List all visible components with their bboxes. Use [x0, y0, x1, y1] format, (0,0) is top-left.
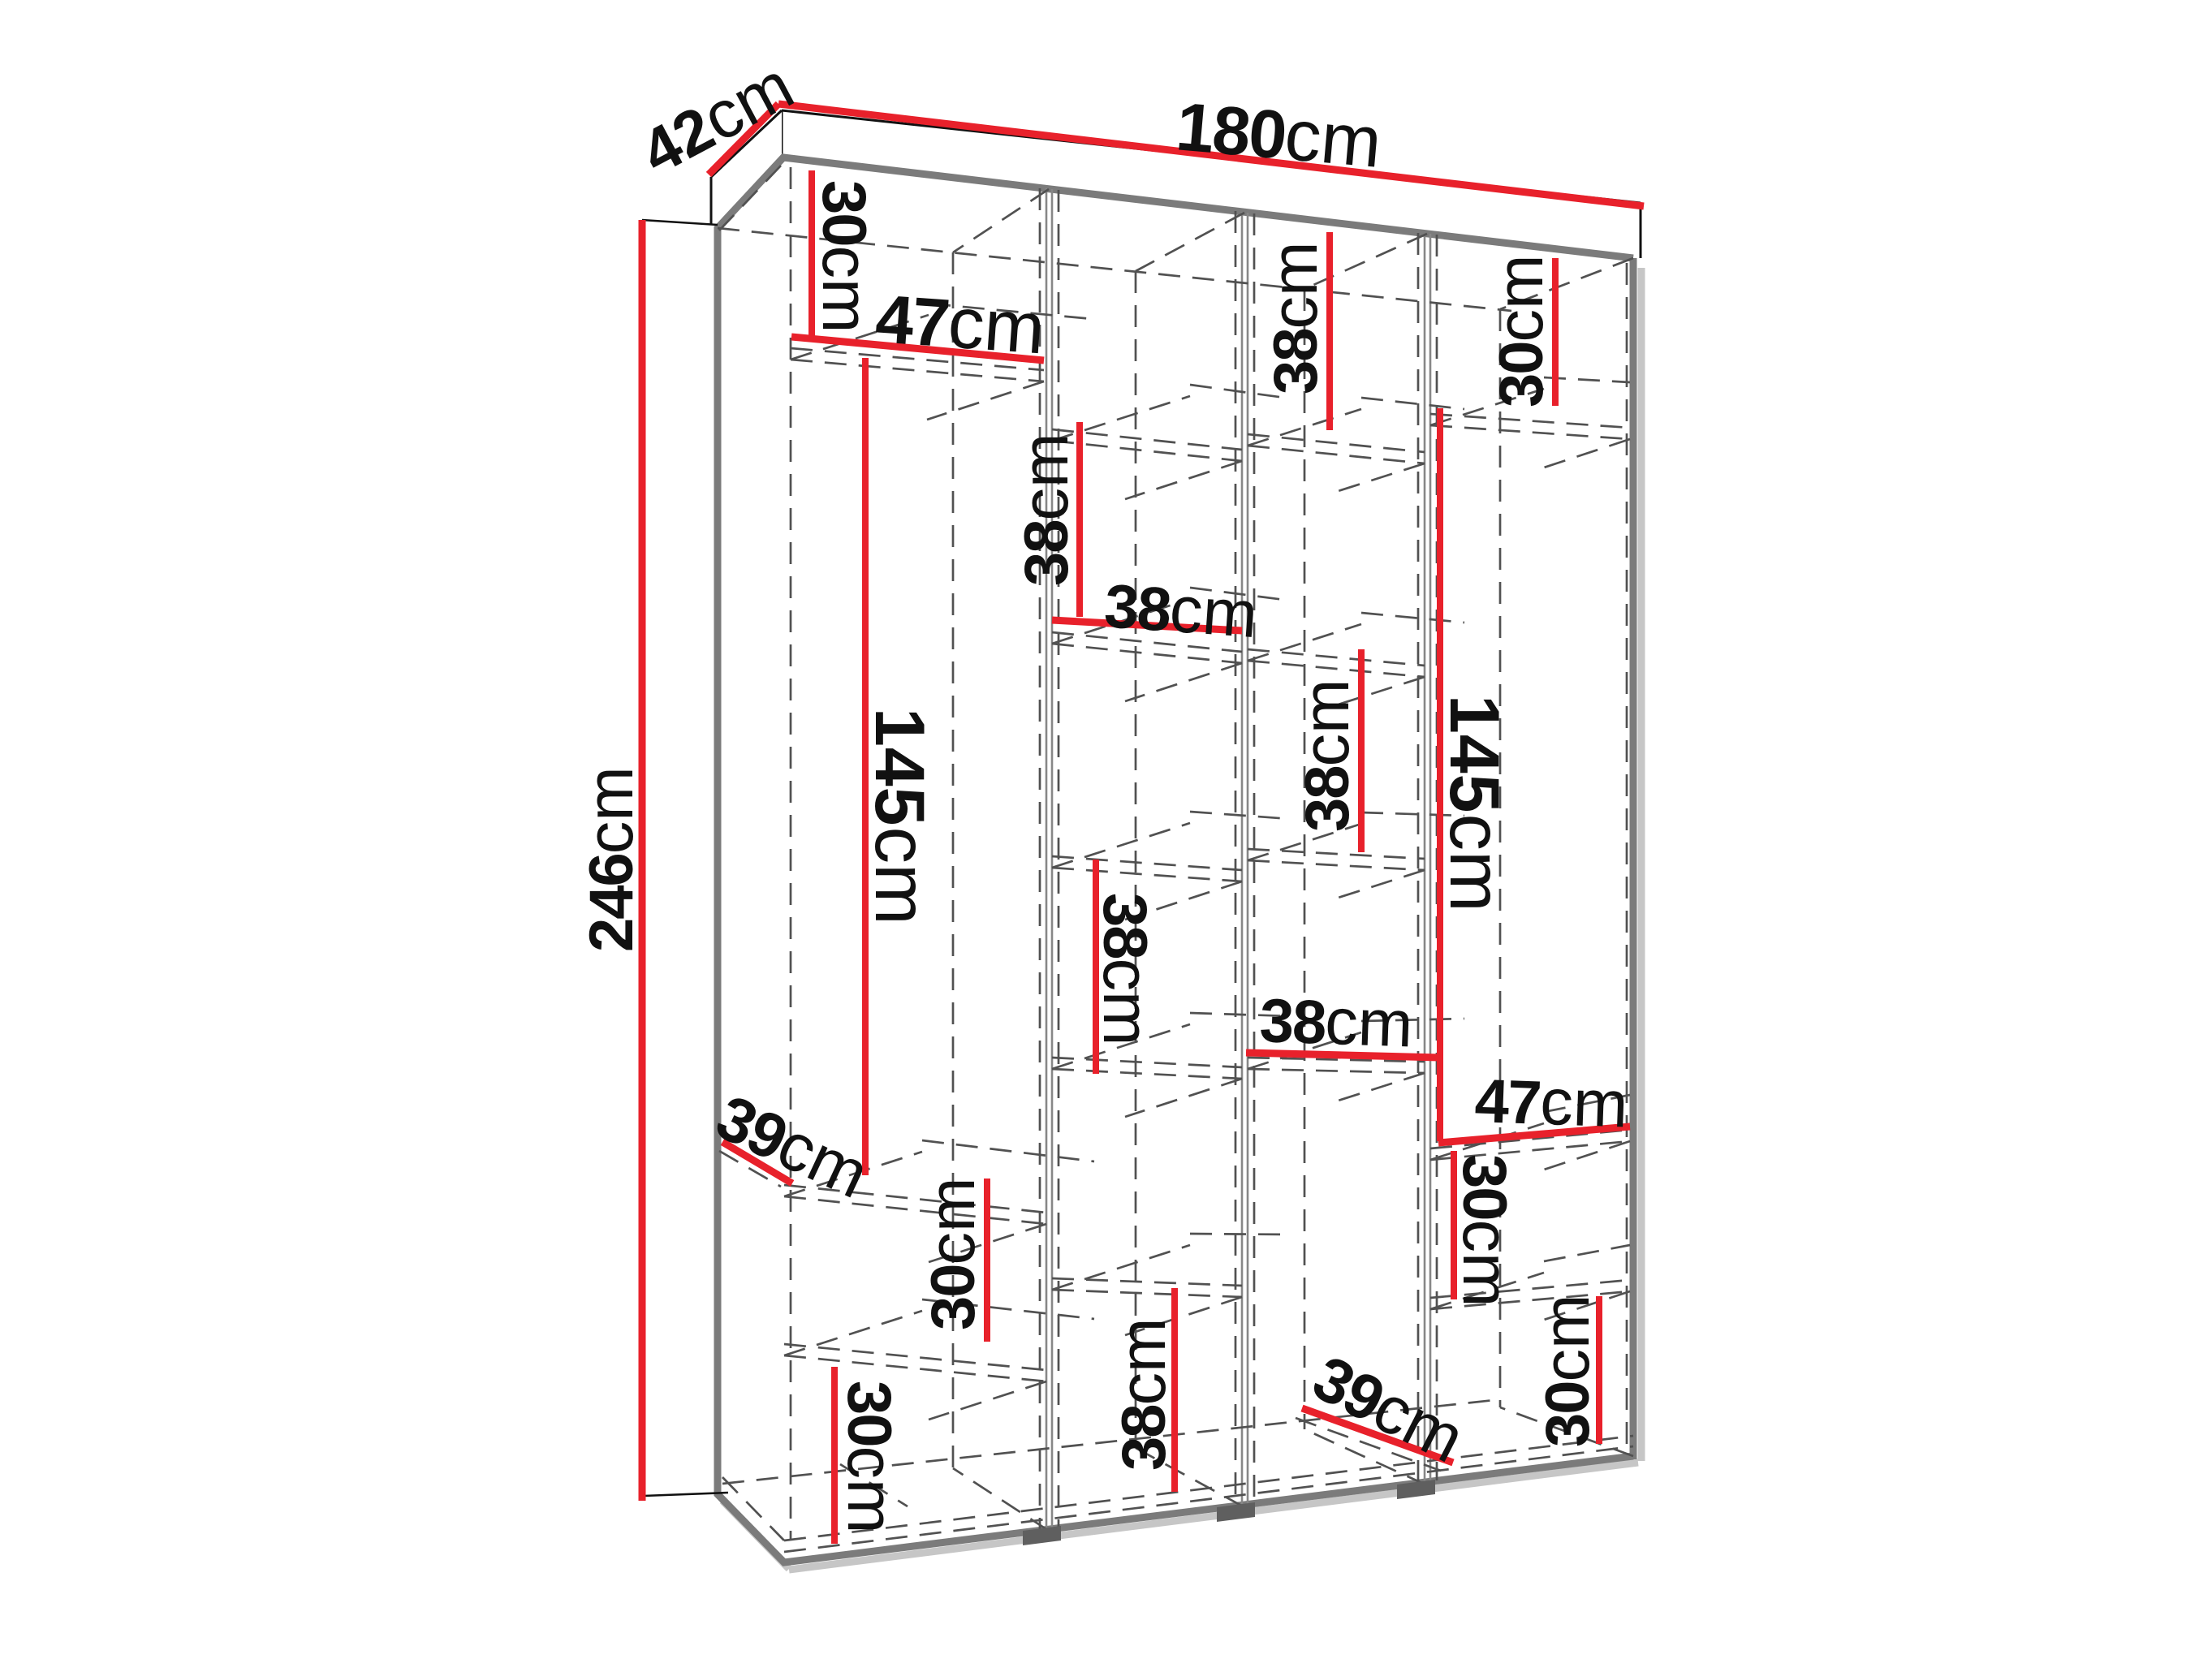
svg-text:38cm: 38cm: [1089, 893, 1162, 1046]
svg-text:30cm: 30cm: [916, 1177, 989, 1330]
svg-text:47cm: 47cm: [873, 276, 1048, 368]
svg-text:30cm: 30cm: [1530, 1294, 1603, 1447]
svg-text:246cm: 246cm: [574, 766, 647, 952]
svg-text:30cm: 30cm: [834, 1381, 907, 1534]
svg-text:145cm: 145cm: [1434, 695, 1516, 912]
svg-text:47cm: 47cm: [1473, 1063, 1629, 1142]
svg-text:38cm: 38cm: [1106, 1317, 1179, 1471]
svg-text:38cm: 38cm: [1102, 568, 1260, 652]
svg-text:30cm: 30cm: [1449, 1154, 1522, 1308]
svg-text:30cm: 30cm: [808, 180, 882, 334]
svg-text:38cm: 38cm: [1290, 679, 1363, 832]
svg-text:38cm: 38cm: [1009, 433, 1082, 586]
svg-text:145cm: 145cm: [860, 708, 942, 925]
svg-text:30cm: 30cm: [1484, 254, 1557, 407]
svg-text:38cm: 38cm: [1258, 983, 1414, 1062]
svg-text:38cm: 38cm: [1258, 241, 1331, 394]
